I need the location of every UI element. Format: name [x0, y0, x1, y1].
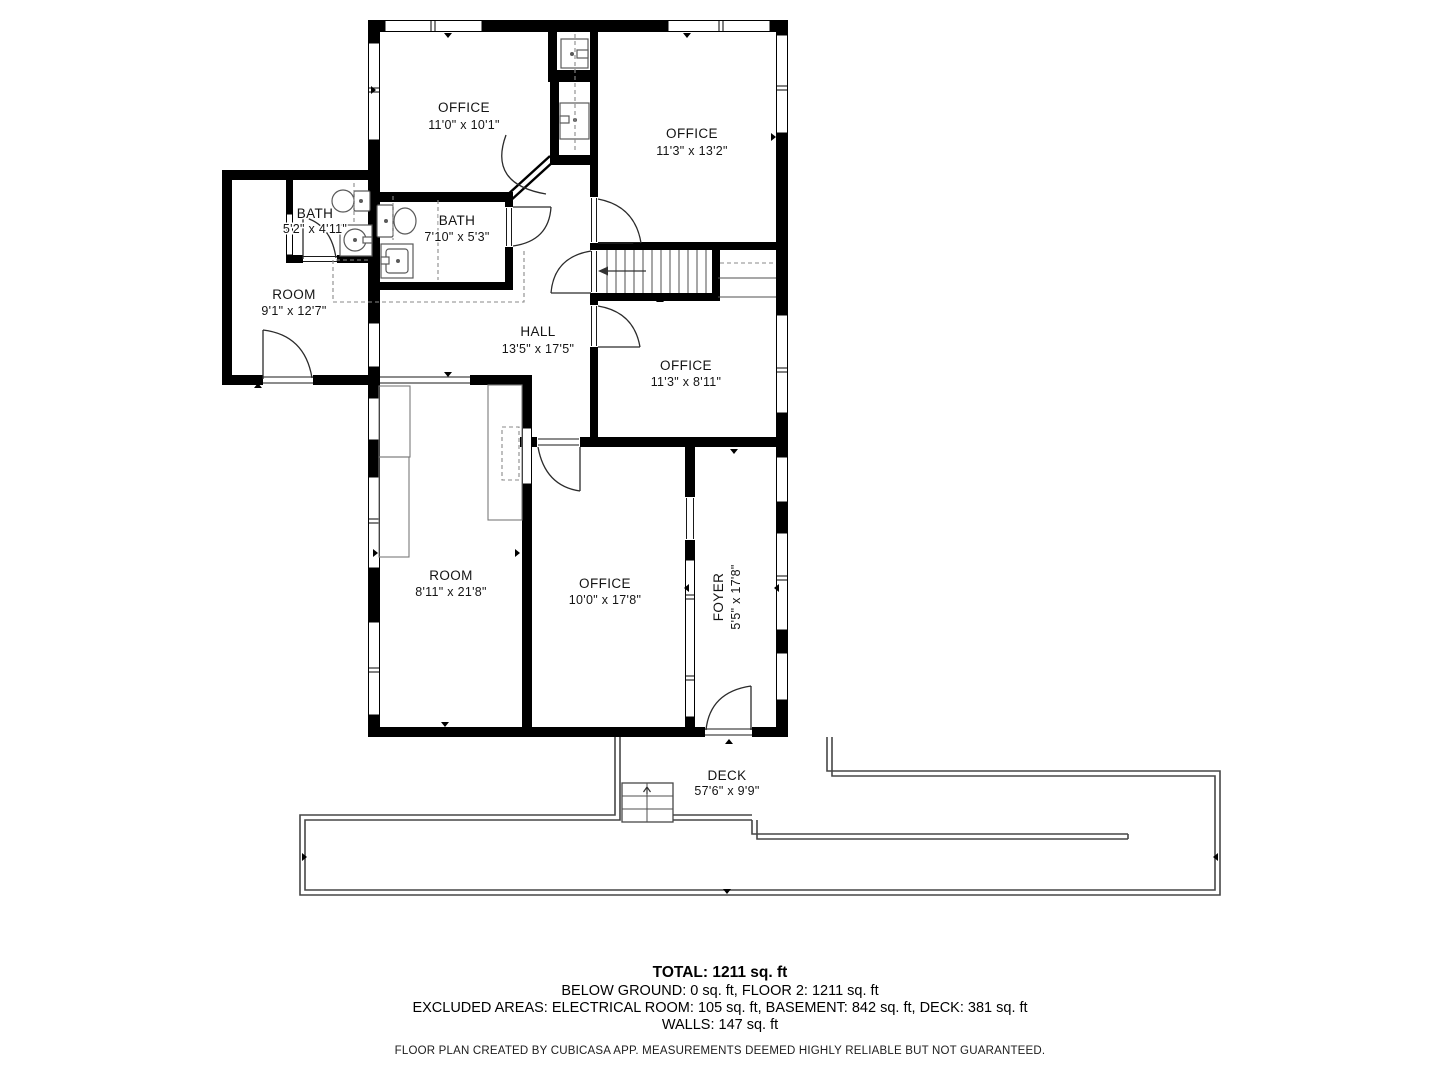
deck-outline — [300, 737, 1220, 895]
door-room-annex — [263, 330, 312, 379]
room-dims-room-annex: 9'1" x 12'7" — [261, 304, 326, 318]
summary-total: TOTAL: 1211 sq. ft — [653, 964, 788, 981]
summary-line3: EXCLUDED AREAS: ELECTRICAL ROOM: 105 sq.… — [412, 1000, 1027, 1016]
room-dims-hall: 13'5" x 17'5" — [502, 342, 574, 356]
room-label-room-lower: ROOM — [429, 568, 473, 583]
room-dims-office-lower: 10'0" x 17'8" — [569, 593, 641, 607]
room-label-foyer-group: FOYER 5'5" x 17'8" — [711, 564, 743, 629]
door-stairs-hall — [551, 251, 591, 293]
room-dims-office-mid-right: 11'3" x 8'11" — [651, 375, 722, 389]
stairs — [598, 250, 776, 297]
room-dims-deck: 57'6" x 9'9" — [694, 784, 759, 798]
door-foyer-entry — [706, 686, 751, 730]
stairs-down-arrow-icon — [598, 267, 608, 276]
disclaimer-text: FLOOR PLAN CREATED BY CUBICASA APP. MEAS… — [395, 1045, 1046, 1057]
room-label-office-top-right: OFFICE — [666, 126, 718, 141]
room-label-foyer: FOYER — [711, 573, 726, 622]
room-label-office-lower: OFFICE — [579, 576, 631, 591]
door-office-lower — [538, 447, 580, 491]
sink-icon — [381, 244, 413, 278]
room-label-room-annex: ROOM — [272, 287, 316, 302]
door-office-top-right — [598, 199, 641, 243]
room-dims-foyer: 5'5" x 17'8" — [729, 564, 743, 629]
room-label-deck: DECK — [707, 768, 746, 783]
room-dims-room-lower: 8'11" x 21'8" — [415, 585, 487, 599]
room-label-hall: HALL — [520, 324, 555, 339]
summary-line4: WALLS: 147 sq. ft — [662, 1017, 778, 1033]
room-label-bath-small: BATH — [297, 206, 334, 221]
door-bath-main — [513, 207, 551, 246]
room-label-office-top-left: OFFICE — [438, 100, 490, 115]
room-dims-office-top-right: 11'3" x 13'2" — [656, 144, 728, 158]
floor-plan-canvas: OFFICE 11'0" x 10'1" OFFICE 11'3" x 13'2… — [0, 0, 1440, 1080]
deck-steps — [622, 783, 673, 822]
summary-line2: BELOW GROUND: 0 sq. ft, FLOOR 2: 1211 sq… — [561, 983, 878, 999]
toilet-icon — [377, 205, 416, 237]
room-dims-bath-main: 7'10" x 5'3" — [424, 230, 489, 244]
room-dims-bath-small: 5'2" x 4'11" — [283, 222, 347, 236]
door-office-mid-right — [598, 306, 640, 347]
summary-block: TOTAL: 1211 sq. ft BELOW GROUND: 0 sq. f… — [395, 964, 1046, 1057]
toilet-icon — [332, 190, 370, 212]
furniture — [379, 385, 522, 557]
floor-plan-page: OFFICE 11'0" x 10'1" OFFICE 11'3" x 13'2… — [0, 0, 1440, 1080]
room-label-office-mid-right: OFFICE — [660, 358, 712, 373]
room-label-bath-main: BATH — [439, 213, 476, 228]
room-dims-office-top-left: 11'0" x 10'1" — [428, 118, 500, 132]
